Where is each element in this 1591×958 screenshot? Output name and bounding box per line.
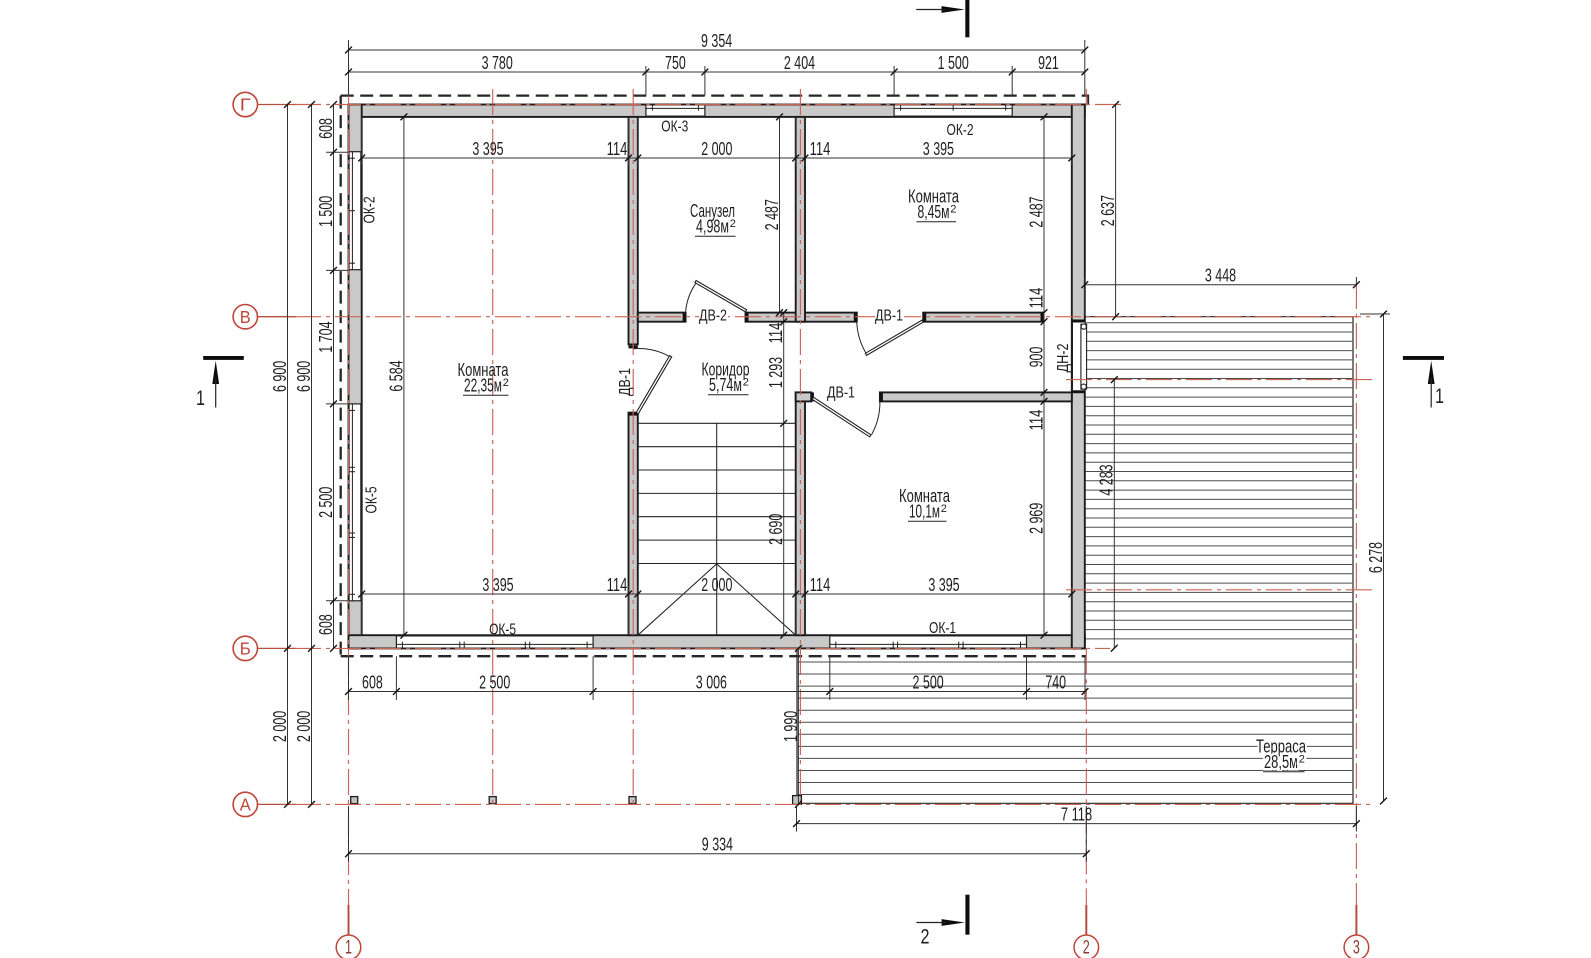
svg-text:4 283: 4 283 [1097, 464, 1117, 495]
svg-text:ОК-2: ОК-2 [361, 197, 378, 224]
svg-text:2 000: 2 000 [701, 139, 732, 159]
svg-text:900: 900 [1026, 347, 1046, 368]
svg-text:2: 2 [1299, 753, 1305, 765]
svg-text:608: 608 [362, 672, 383, 692]
svg-text:114: 114 [810, 139, 831, 159]
svg-text:2 500: 2 500 [316, 487, 336, 518]
svg-text:ОК-1: ОК-1 [929, 620, 956, 637]
svg-text:608: 608 [316, 614, 336, 635]
svg-text:10,1м: 10,1м [909, 502, 940, 522]
svg-text:3 395: 3 395 [472, 139, 503, 159]
svg-text:921: 921 [1038, 53, 1059, 73]
svg-text:1: 1 [196, 387, 205, 410]
svg-text:740: 740 [1045, 672, 1066, 692]
svg-text:1 293: 1 293 [766, 357, 786, 388]
svg-text:3 448: 3 448 [1205, 266, 1236, 286]
svg-text:1 990: 1 990 [781, 711, 801, 742]
svg-text:2 500: 2 500 [479, 672, 510, 692]
svg-text:2 487: 2 487 [1026, 196, 1046, 227]
svg-text:1 500: 1 500 [316, 196, 336, 227]
svg-text:28,5м: 28,5м [1264, 752, 1298, 772]
svg-text:4,98м: 4,98м [696, 217, 729, 237]
svg-text:2 690: 2 690 [766, 514, 786, 545]
svg-text:2: 2 [743, 376, 749, 388]
svg-text:2 000: 2 000 [294, 711, 314, 742]
svg-text:2: 2 [503, 377, 509, 389]
svg-text:2 637: 2 637 [1098, 195, 1118, 226]
svg-text:2 969: 2 969 [1026, 503, 1046, 534]
svg-text:2 500: 2 500 [913, 672, 944, 692]
svg-text:ДН-2: ДН-2 [1055, 344, 1072, 373]
svg-text:3 006: 3 006 [696, 672, 727, 692]
svg-text:114: 114 [1026, 288, 1046, 309]
svg-text:1 704: 1 704 [316, 322, 336, 353]
svg-text:2 000: 2 000 [270, 711, 290, 742]
svg-text:ОК-3: ОК-3 [661, 119, 688, 136]
svg-text:6 900: 6 900 [270, 361, 290, 392]
svg-text:8,45м: 8,45м [918, 202, 950, 222]
svg-text:ДВ-2: ДВ-2 [699, 307, 727, 324]
svg-text:7 118: 7 118 [1061, 804, 1092, 824]
svg-text:750: 750 [665, 53, 686, 73]
svg-text:ОК-5: ОК-5 [364, 487, 381, 514]
svg-text:2: 2 [921, 926, 930, 949]
svg-text:9 354: 9 354 [701, 31, 732, 51]
svg-text:ОК-5: ОК-5 [489, 621, 516, 638]
svg-text:114: 114 [766, 323, 786, 344]
svg-text:114: 114 [810, 575, 831, 595]
svg-text:2 404: 2 404 [784, 53, 815, 73]
svg-text:Б: Б [240, 639, 251, 659]
svg-text:3 780: 3 780 [482, 53, 513, 73]
svg-text:ДВ-1: ДВ-1 [827, 385, 855, 402]
svg-text:Г: Г [240, 95, 252, 115]
svg-text:6 584: 6 584 [386, 360, 406, 391]
svg-text:6 278: 6 278 [1366, 542, 1386, 573]
svg-text:2 487: 2 487 [762, 199, 782, 230]
svg-text:114: 114 [1026, 410, 1046, 431]
svg-text:114: 114 [607, 575, 628, 595]
svg-text:В: В [240, 307, 251, 327]
svg-text:5,74м: 5,74м [709, 375, 742, 395]
svg-text:22,35м: 22,35м [464, 376, 502, 396]
svg-text:2 000: 2 000 [701, 575, 732, 595]
svg-text:3 395: 3 395 [482, 575, 513, 595]
svg-text:2: 2 [730, 218, 736, 230]
svg-text:3 395: 3 395 [928, 575, 959, 595]
svg-text:6 900: 6 900 [294, 361, 314, 392]
svg-text:ДВ-1: ДВ-1 [617, 368, 634, 396]
svg-text:1 500: 1 500 [938, 53, 969, 73]
svg-text:ДВ-1: ДВ-1 [875, 307, 903, 324]
svg-text:3: 3 [1353, 937, 1360, 958]
svg-text:1: 1 [1435, 385, 1444, 408]
svg-text:2: 2 [950, 203, 956, 215]
svg-text:2: 2 [1083, 937, 1090, 958]
svg-text:114: 114 [607, 139, 628, 159]
svg-text:1: 1 [345, 937, 352, 958]
svg-text:ОК-2: ОК-2 [947, 122, 974, 139]
svg-text:3 395: 3 395 [923, 139, 954, 159]
svg-text:9 334: 9 334 [702, 835, 733, 855]
svg-text:2: 2 [941, 503, 947, 515]
svg-text:608: 608 [316, 118, 336, 139]
svg-text:А: А [240, 795, 251, 815]
